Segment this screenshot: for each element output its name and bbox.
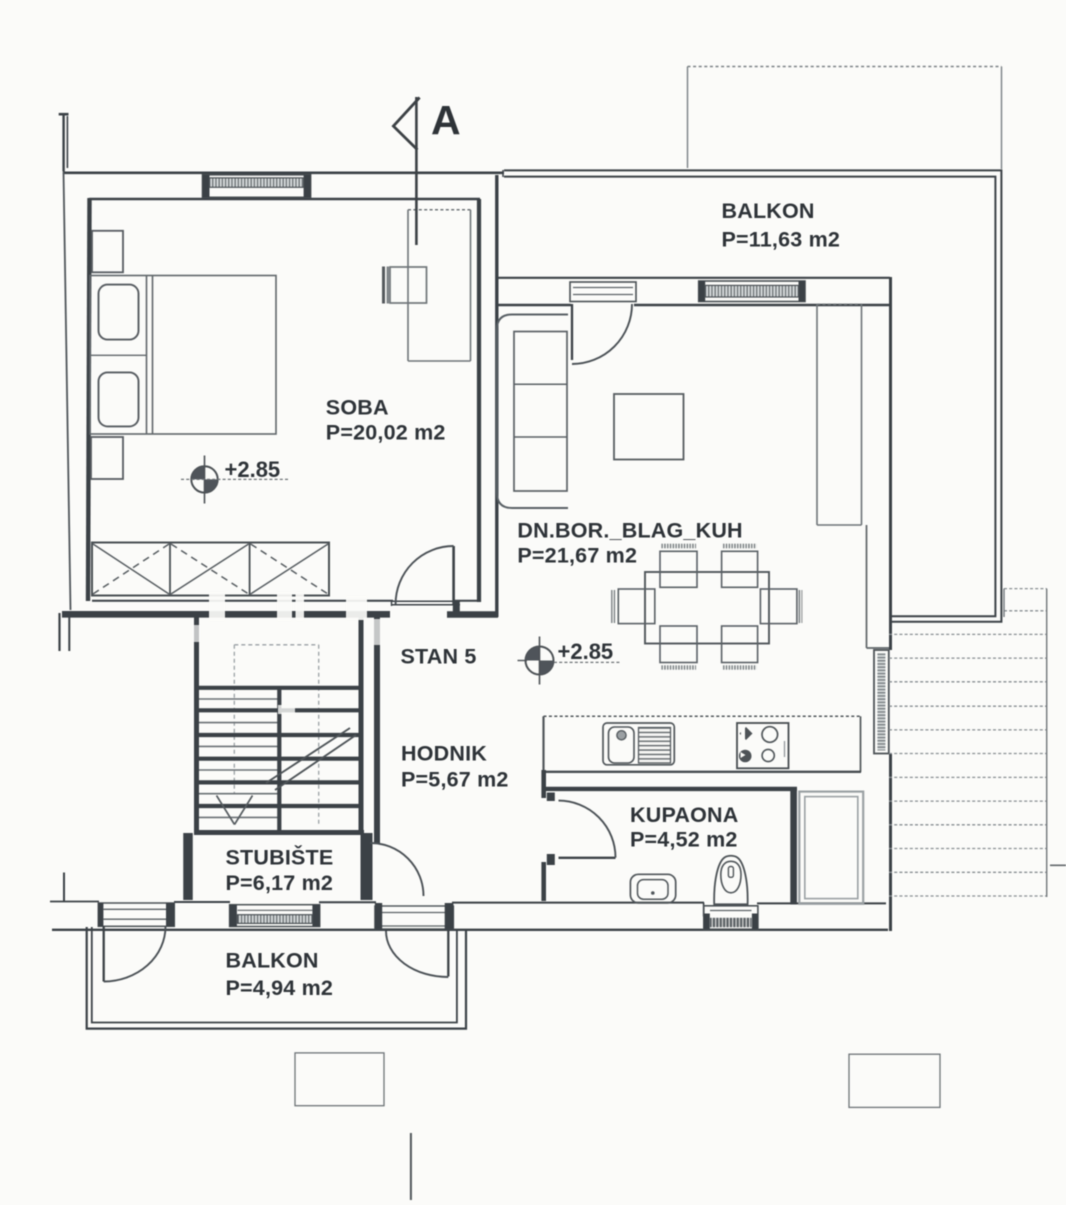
svg-text:BALKON: BALKON (226, 949, 319, 973)
svg-text:STUBIŠTE: STUBIŠTE (226, 845, 334, 870)
svg-text:+2.85: +2.85 (225, 457, 281, 482)
svg-text:P=5,67 m2: P=5,67 m2 (401, 768, 509, 792)
svg-text:P=21,67 m2: P=21,67 m2 (517, 544, 637, 568)
svg-text:HODNIK: HODNIK (401, 742, 487, 766)
svg-text:P=11,63 m2: P=11,63 m2 (722, 228, 841, 252)
svg-text:+2.85: +2.85 (558, 639, 614, 664)
svg-text:SOBA: SOBA (326, 396, 389, 420)
svg-text:DN.BOR._BLAG_KUH: DN.BOR._BLAG_KUH (517, 519, 742, 543)
svg-text:P=6,17 m2: P=6,17 m2 (226, 871, 334, 895)
svg-text:P=20,02 m2: P=20,02 m2 (326, 421, 446, 445)
svg-text:P=4,94 m2: P=4,94 m2 (226, 976, 334, 1000)
svg-text:STAN 5: STAN 5 (401, 645, 477, 669)
svg-text:BALKON: BALKON (722, 199, 815, 223)
svg-text:P=4,52 m2: P=4,52 m2 (630, 828, 738, 852)
svg-text:KUPAONA: KUPAONA (630, 803, 739, 827)
svg-text:A: A (431, 97, 461, 143)
